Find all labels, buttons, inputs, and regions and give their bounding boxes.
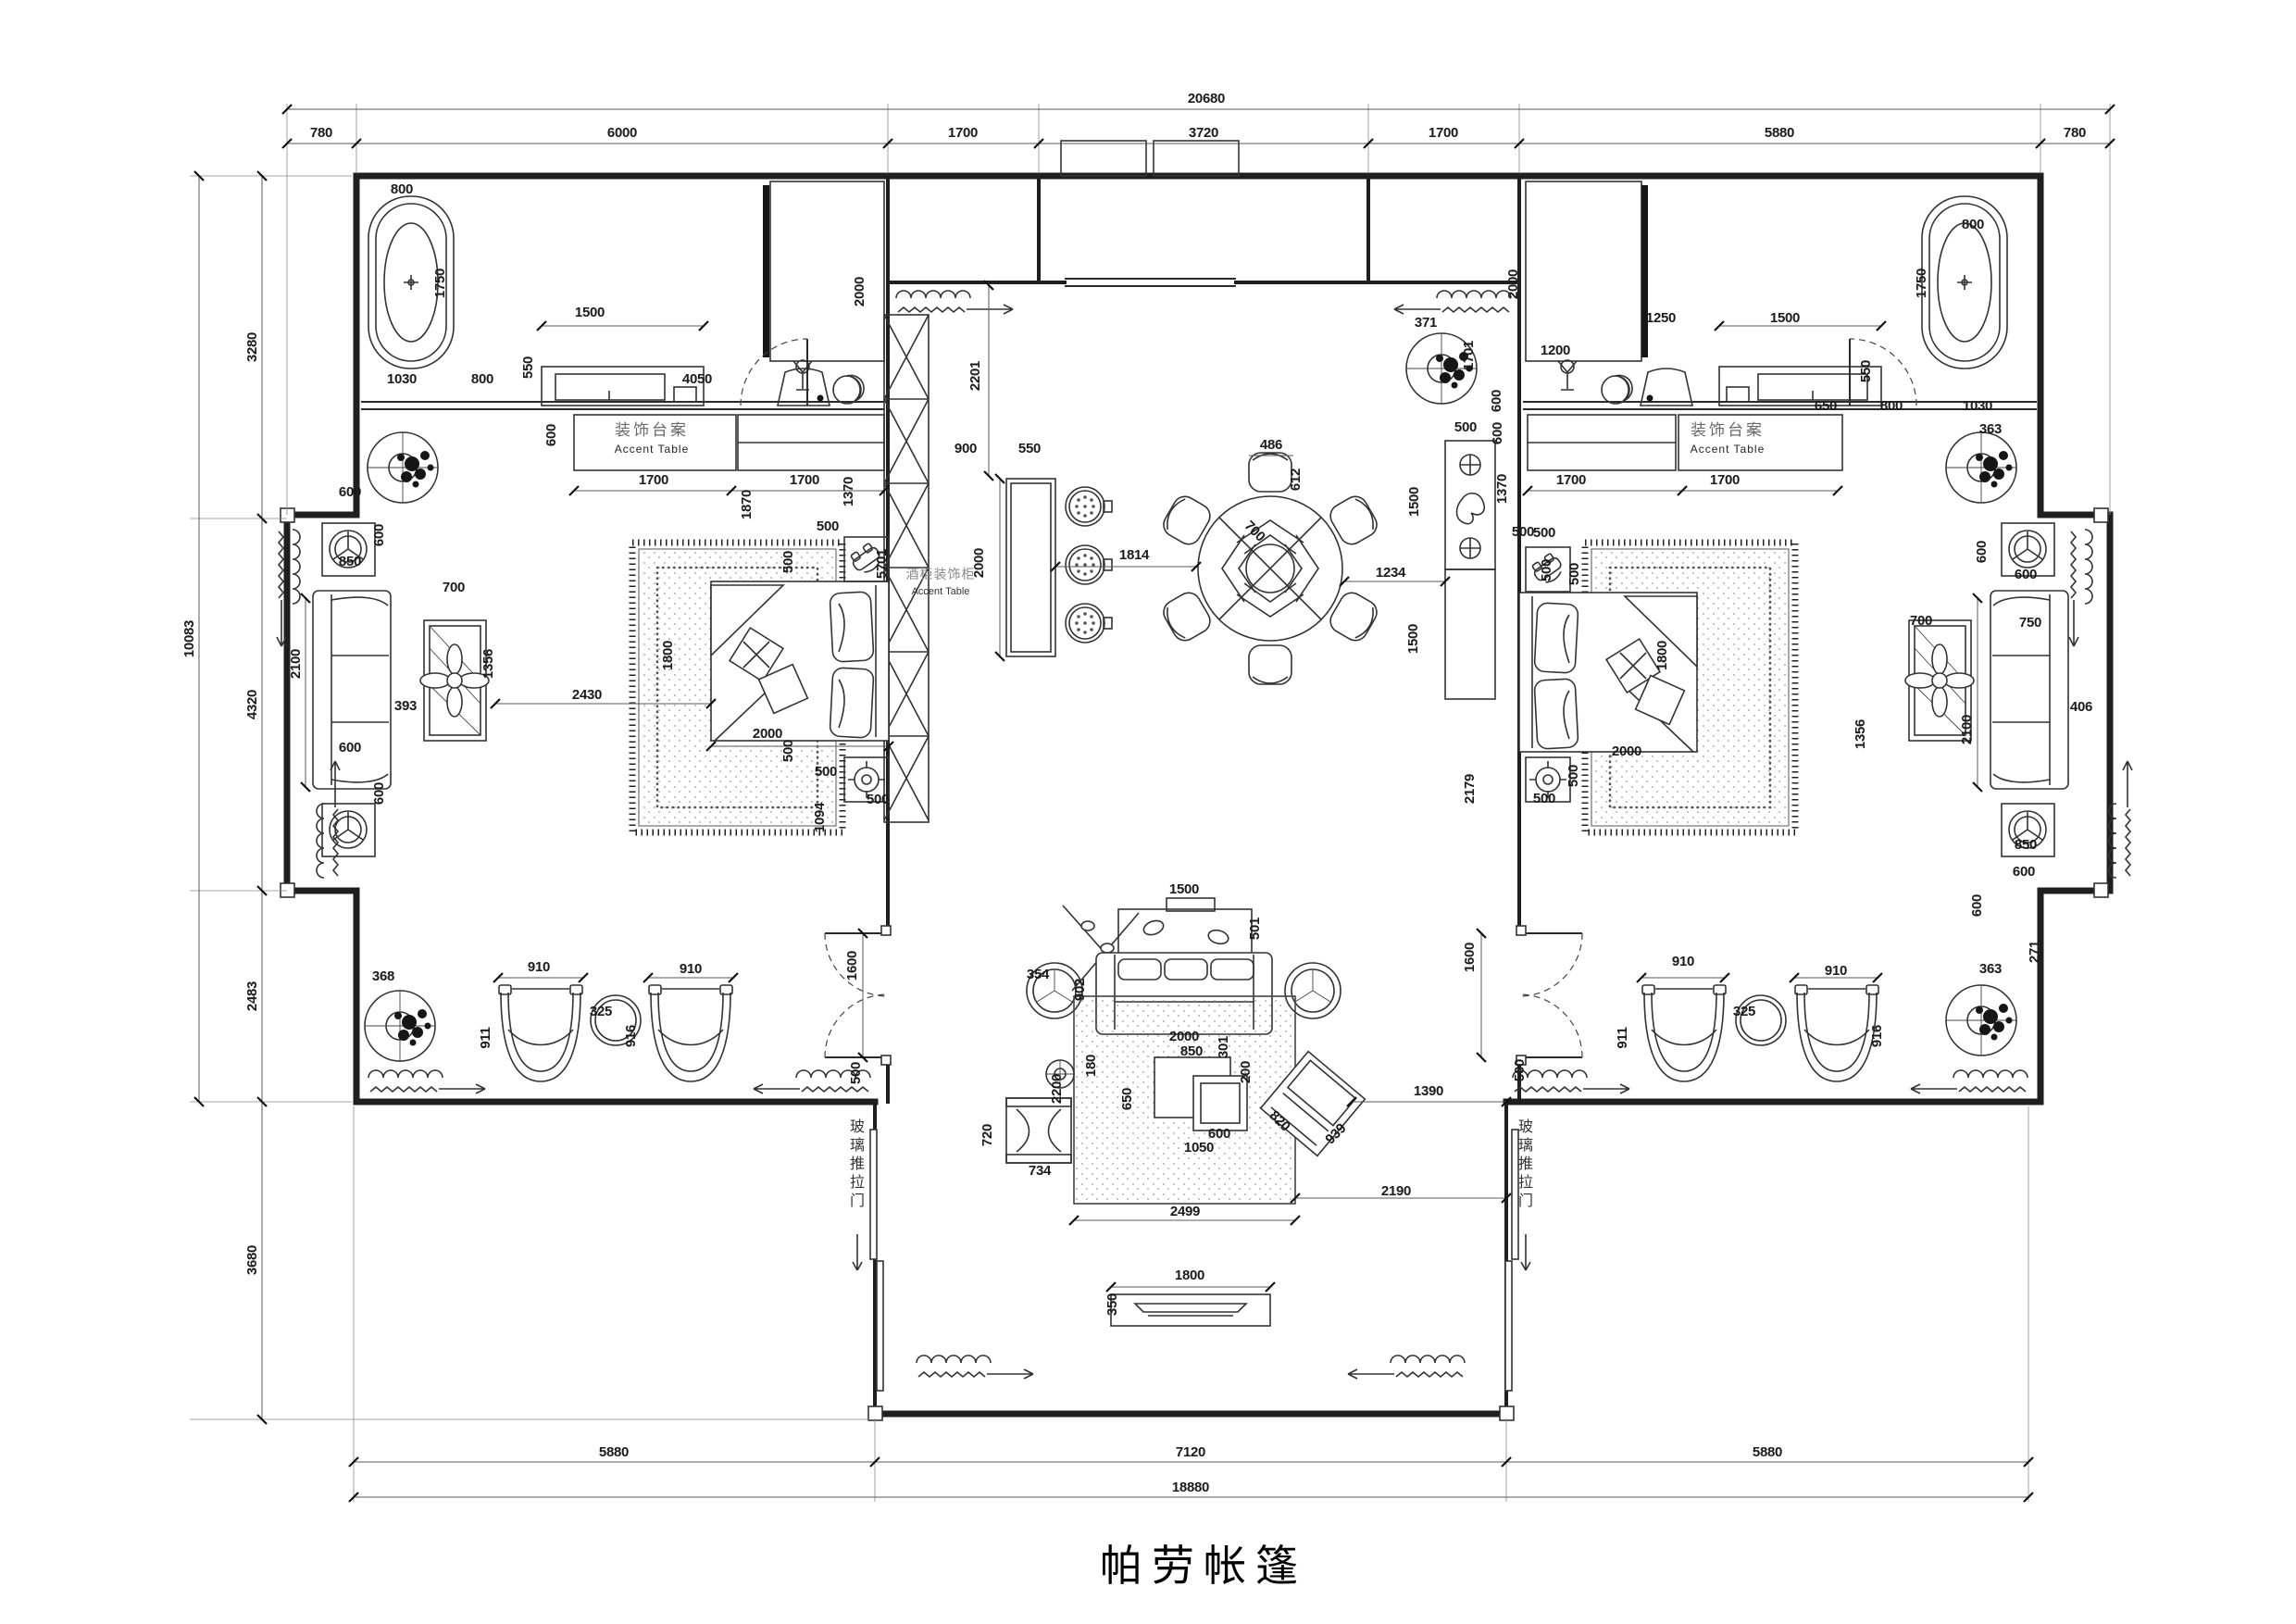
dimension-label: 325 <box>1733 1004 1755 1019</box>
dimension-label: 301 <box>1216 1036 1231 1058</box>
dimension-label: 2000 <box>1612 743 1641 759</box>
dimension-label: 2000 <box>971 548 987 578</box>
dimension-label: 2430 <box>572 687 602 703</box>
dimension-label: 600 <box>371 524 387 546</box>
dimension-label: 2000 <box>1505 269 1521 299</box>
dimension-label: 2000 <box>753 726 782 742</box>
dimension-label: 1800 <box>1175 1268 1204 1283</box>
dimension-label: 600 <box>1969 894 1985 917</box>
dimension-label: 500 <box>1512 1059 1528 1081</box>
dimension-label: 700 <box>1910 613 1932 629</box>
dimension-label: 1870 <box>739 490 755 519</box>
dimension-label: 500 <box>1454 419 1477 435</box>
living-bench <box>1006 1098 1071 1163</box>
dimension-label: 4320 <box>244 690 260 719</box>
floor-plan-drawing: 装饰台案 Accent Table 装饰台案 Accent Table 酒柜装饰… <box>0 0 2296 1624</box>
dimension-label: 1356 <box>1853 719 1868 749</box>
dimension-label: 2000 <box>852 277 867 306</box>
dimension-label: 600 <box>2013 864 2035 880</box>
dimension-label: 800 <box>471 371 493 387</box>
se-plant <box>1946 985 2016 1056</box>
dimension-label: 1750 <box>1914 269 1929 298</box>
dimension-label: 550 <box>1018 441 1041 456</box>
dimension-label: 5880 <box>1753 1444 1782 1460</box>
dimension-label: 6000 <box>607 125 637 141</box>
dimension-label: 1356 <box>480 649 496 679</box>
dimension-label: 5701 <box>874 549 890 579</box>
dimension-label: 916 <box>623 1025 639 1047</box>
floor-plan-page: 装饰台案 Accent Table 装饰台案 Accent Table 酒柜装饰… <box>0 0 2296 1624</box>
dimension-label: 550 <box>1858 360 1874 382</box>
dimension-label: 1500 <box>1405 624 1421 654</box>
dimension-label: 600 <box>371 782 387 805</box>
dimension-label: 3720 <box>1189 125 1218 141</box>
dimension-label: 780 <box>2064 125 2086 141</box>
dimension-label: 486 <box>1260 437 1282 453</box>
dimension-label: 720 <box>980 1124 995 1146</box>
dimension-label: 1800 <box>1654 641 1670 670</box>
glass-sliding-door-label: 玻璃推拉门 <box>1518 1118 1533 1209</box>
dimension-label: 600 <box>1489 390 1504 412</box>
dimension-label: 325 <box>590 1004 612 1019</box>
dimension-label: 600 <box>1974 541 1990 563</box>
dimension-label: 1500 <box>1770 310 1800 326</box>
dimension-label: 200 <box>1238 1061 1254 1083</box>
dimension-label: 500 <box>780 740 796 762</box>
dimension-label: 2499 <box>1170 1204 1200 1219</box>
dimension-label: 363 <box>1979 421 2002 437</box>
dimension-label: 1050 <box>1184 1140 1214 1156</box>
left-accent-table-label-en: Accent Table <box>615 443 690 456</box>
bar-stool <box>1066 487 1112 526</box>
dimension-label: 1250 <box>1646 310 1676 326</box>
dimension-label: 500 <box>817 518 839 534</box>
dimension-label: 4050 <box>682 371 712 387</box>
left-basin <box>778 369 864 406</box>
left-bathroom-door <box>741 339 807 406</box>
dimension-label: 1750 <box>432 269 448 298</box>
dimension-label: 910 <box>680 961 702 977</box>
dimension-label: 1700 <box>1710 472 1740 488</box>
drawing-title: 帕劳帐篷 <box>1100 1542 1307 1590</box>
left-shower <box>763 181 884 361</box>
right-drawer-console <box>1528 415 1676 470</box>
dimension-label: 1030 <box>387 371 417 387</box>
dimension-label: 1700 <box>948 125 978 141</box>
dimension-label: 600 <box>543 424 559 446</box>
dimension-label: 501 <box>1247 918 1263 940</box>
right-accent-table-label-cn: 装饰台案 <box>1691 421 1765 439</box>
right-bath-plant <box>1946 432 2016 503</box>
left-accent-table-label-cn: 装饰台案 <box>615 421 689 439</box>
right-suite-entry-doors <box>1516 926 1582 1065</box>
dimension-label: 916 <box>1869 1025 1885 1047</box>
dimension-label: 1700 <box>790 472 819 488</box>
bar-stool <box>1066 604 1112 643</box>
dimension-label: 2100 <box>1959 715 1975 744</box>
right-accent-table-label-en: Accent Table <box>1691 443 1766 456</box>
living-console <box>1118 898 1252 954</box>
se-tub-chair <box>1642 985 1726 1081</box>
dimension-label: 1700 <box>1429 125 1458 141</box>
dimension-label: 500 <box>867 792 889 807</box>
dimension-label: 650 <box>1119 1088 1135 1110</box>
bar-stool <box>1066 545 1112 584</box>
dimension-label: 911 <box>1615 1027 1630 1048</box>
dimension-label: 910 <box>528 959 550 975</box>
dimension-label: 368 <box>372 968 394 984</box>
dimension-label: 1700 <box>1556 472 1586 488</box>
dimension-label: 2000 <box>1169 1029 1199 1044</box>
left-bath-candelabra <box>793 360 812 390</box>
dimension-label: 700 <box>443 580 465 595</box>
dimension-label: 1030 <box>1963 398 1992 414</box>
sw-tub-chair <box>649 985 732 1081</box>
glass-sliding-door-label: 玻璃推拉门 <box>850 1118 865 1209</box>
dimension-label: 406 <box>2070 699 2092 715</box>
dimension-label: 5880 <box>599 1444 629 1460</box>
dimension-label: 1200 <box>1541 343 1570 358</box>
dimension-label: 180 <box>1083 1055 1099 1077</box>
outer-walls <box>287 176 2110 1414</box>
dimension-label: 850 <box>1180 1043 1203 1059</box>
dimension-label: 900 <box>955 441 977 456</box>
dimension-label: 800 <box>391 181 413 197</box>
dimension-label: 600 <box>339 740 361 756</box>
dimension-label: 271 <box>2027 941 2042 963</box>
west-side-table <box>322 804 375 856</box>
left-bed <box>711 581 889 741</box>
dimension-label: 1814 <box>1119 547 1150 563</box>
dimension-label: 2100 <box>288 649 304 679</box>
dimension-label: 5880 <box>1765 125 1794 141</box>
dimension-label: 500 <box>780 551 796 573</box>
entry-porch-steps <box>1061 141 1239 176</box>
dimension-label: 750 <box>2019 615 2041 631</box>
left-drawer-console <box>738 415 884 470</box>
dimension-label: 7120 <box>1176 1444 1205 1460</box>
wine-cabinet-label-en: Accent Table <box>912 586 970 597</box>
right-bath-candelabra <box>1558 360 1577 390</box>
west-coffee-table <box>420 620 489 741</box>
left-vanity-mirror <box>542 367 704 406</box>
dimension-label: 700 <box>1242 518 1268 544</box>
dimension-label: 2179 <box>1462 774 1478 804</box>
dimension-label: 20680 <box>1188 91 1225 106</box>
se-tub-chair <box>1795 985 1878 1081</box>
dimension-label: 911 <box>478 1027 493 1048</box>
right-vanity-mirror <box>1719 367 1881 406</box>
west-sofa <box>313 591 391 789</box>
dimension-label: 2200 <box>1049 1074 1065 1104</box>
dimension-label: 1500 <box>1169 881 1199 897</box>
dimension-label: 1094 <box>812 802 828 832</box>
dimension-label: 650 <box>1815 398 1837 414</box>
dimension-label: 902 <box>1072 979 1088 1001</box>
dimension-label: 1600 <box>1462 943 1478 972</box>
dimension-label: 2483 <box>244 981 260 1011</box>
dimension-label: 600 <box>1490 422 1505 444</box>
bar-counter <box>1006 479 1055 656</box>
dimension-label: 500 <box>1539 559 1554 581</box>
dimension-label: 393 <box>394 698 417 714</box>
dimension-label: 354 <box>1027 967 1050 982</box>
dimension-label: 800 <box>1962 217 1984 232</box>
dimension-label: 734 <box>1029 1163 1052 1179</box>
dimension-label: 350 <box>1104 1293 1120 1316</box>
sw-plant <box>365 991 435 1061</box>
dimension-label: 1701 <box>1461 341 1477 370</box>
dimension-label: 500 <box>1566 563 1582 585</box>
dining-table <box>1198 496 1342 641</box>
dimension-label: 10083 <box>181 620 197 657</box>
dimension-label: 1800 <box>660 641 676 670</box>
dimension-label: 910 <box>1672 954 1694 969</box>
dimension-label: 2201 <box>967 361 983 391</box>
tv-console <box>1111 1294 1270 1326</box>
dimension-label: 1390 <box>1414 1083 1443 1099</box>
dimension-label: 850 <box>2015 837 2037 853</box>
dimension-label: 910 <box>1825 963 1847 979</box>
dimension-label: 1500 <box>575 305 605 320</box>
dimension-label: 3680 <box>244 1245 260 1275</box>
dimension-label: 1370 <box>1494 474 1510 504</box>
dimension-label: 612 <box>1288 468 1304 491</box>
dimension-label: 500 <box>1533 525 1555 541</box>
right-basin <box>1602 369 1692 406</box>
dimension-lines <box>190 104 2115 1502</box>
dimension-label: 500 <box>1512 524 1534 540</box>
entry-console <box>1445 441 1495 699</box>
right-shower <box>1526 181 1648 361</box>
left-bath-plant <box>368 432 438 503</box>
dimension-label: 550 <box>520 356 536 379</box>
dimension-label: 600 <box>2015 567 2037 582</box>
dimension-label: 1500 <box>1406 487 1422 517</box>
dimension-label: 850 <box>339 554 361 569</box>
curtain-symbols <box>277 291 2132 1379</box>
left-suite-entry-doors <box>825 926 891 1065</box>
dimension-label: 1700 <box>639 472 668 488</box>
dimension-label: 3280 <box>244 332 260 362</box>
dimension-label: 18880 <box>1172 1480 1209 1495</box>
dimension-label: 800 <box>1880 398 1903 414</box>
sw-tub-chair <box>499 985 582 1081</box>
dimension-label: 500 <box>815 764 837 780</box>
dimension-label: 500 <box>848 1062 864 1084</box>
dimension-label: 600 <box>339 484 361 500</box>
dimension-label: 1600 <box>844 951 860 981</box>
dimension-label: 1370 <box>841 477 856 506</box>
dimension-label: 780 <box>310 125 332 141</box>
right-bed <box>1519 593 1697 752</box>
wine-cabinet-label-cn: 酒柜装饰柜 <box>906 567 976 581</box>
dimension-label: 371 <box>1415 315 1437 331</box>
dimension-label: 2190 <box>1381 1183 1411 1199</box>
dimension-label: 363 <box>1979 961 2002 977</box>
dimension-label: 500 <box>1566 765 1581 787</box>
dimension-label: 500 <box>1533 791 1555 806</box>
dimension-label: 1234 <box>1376 565 1406 581</box>
